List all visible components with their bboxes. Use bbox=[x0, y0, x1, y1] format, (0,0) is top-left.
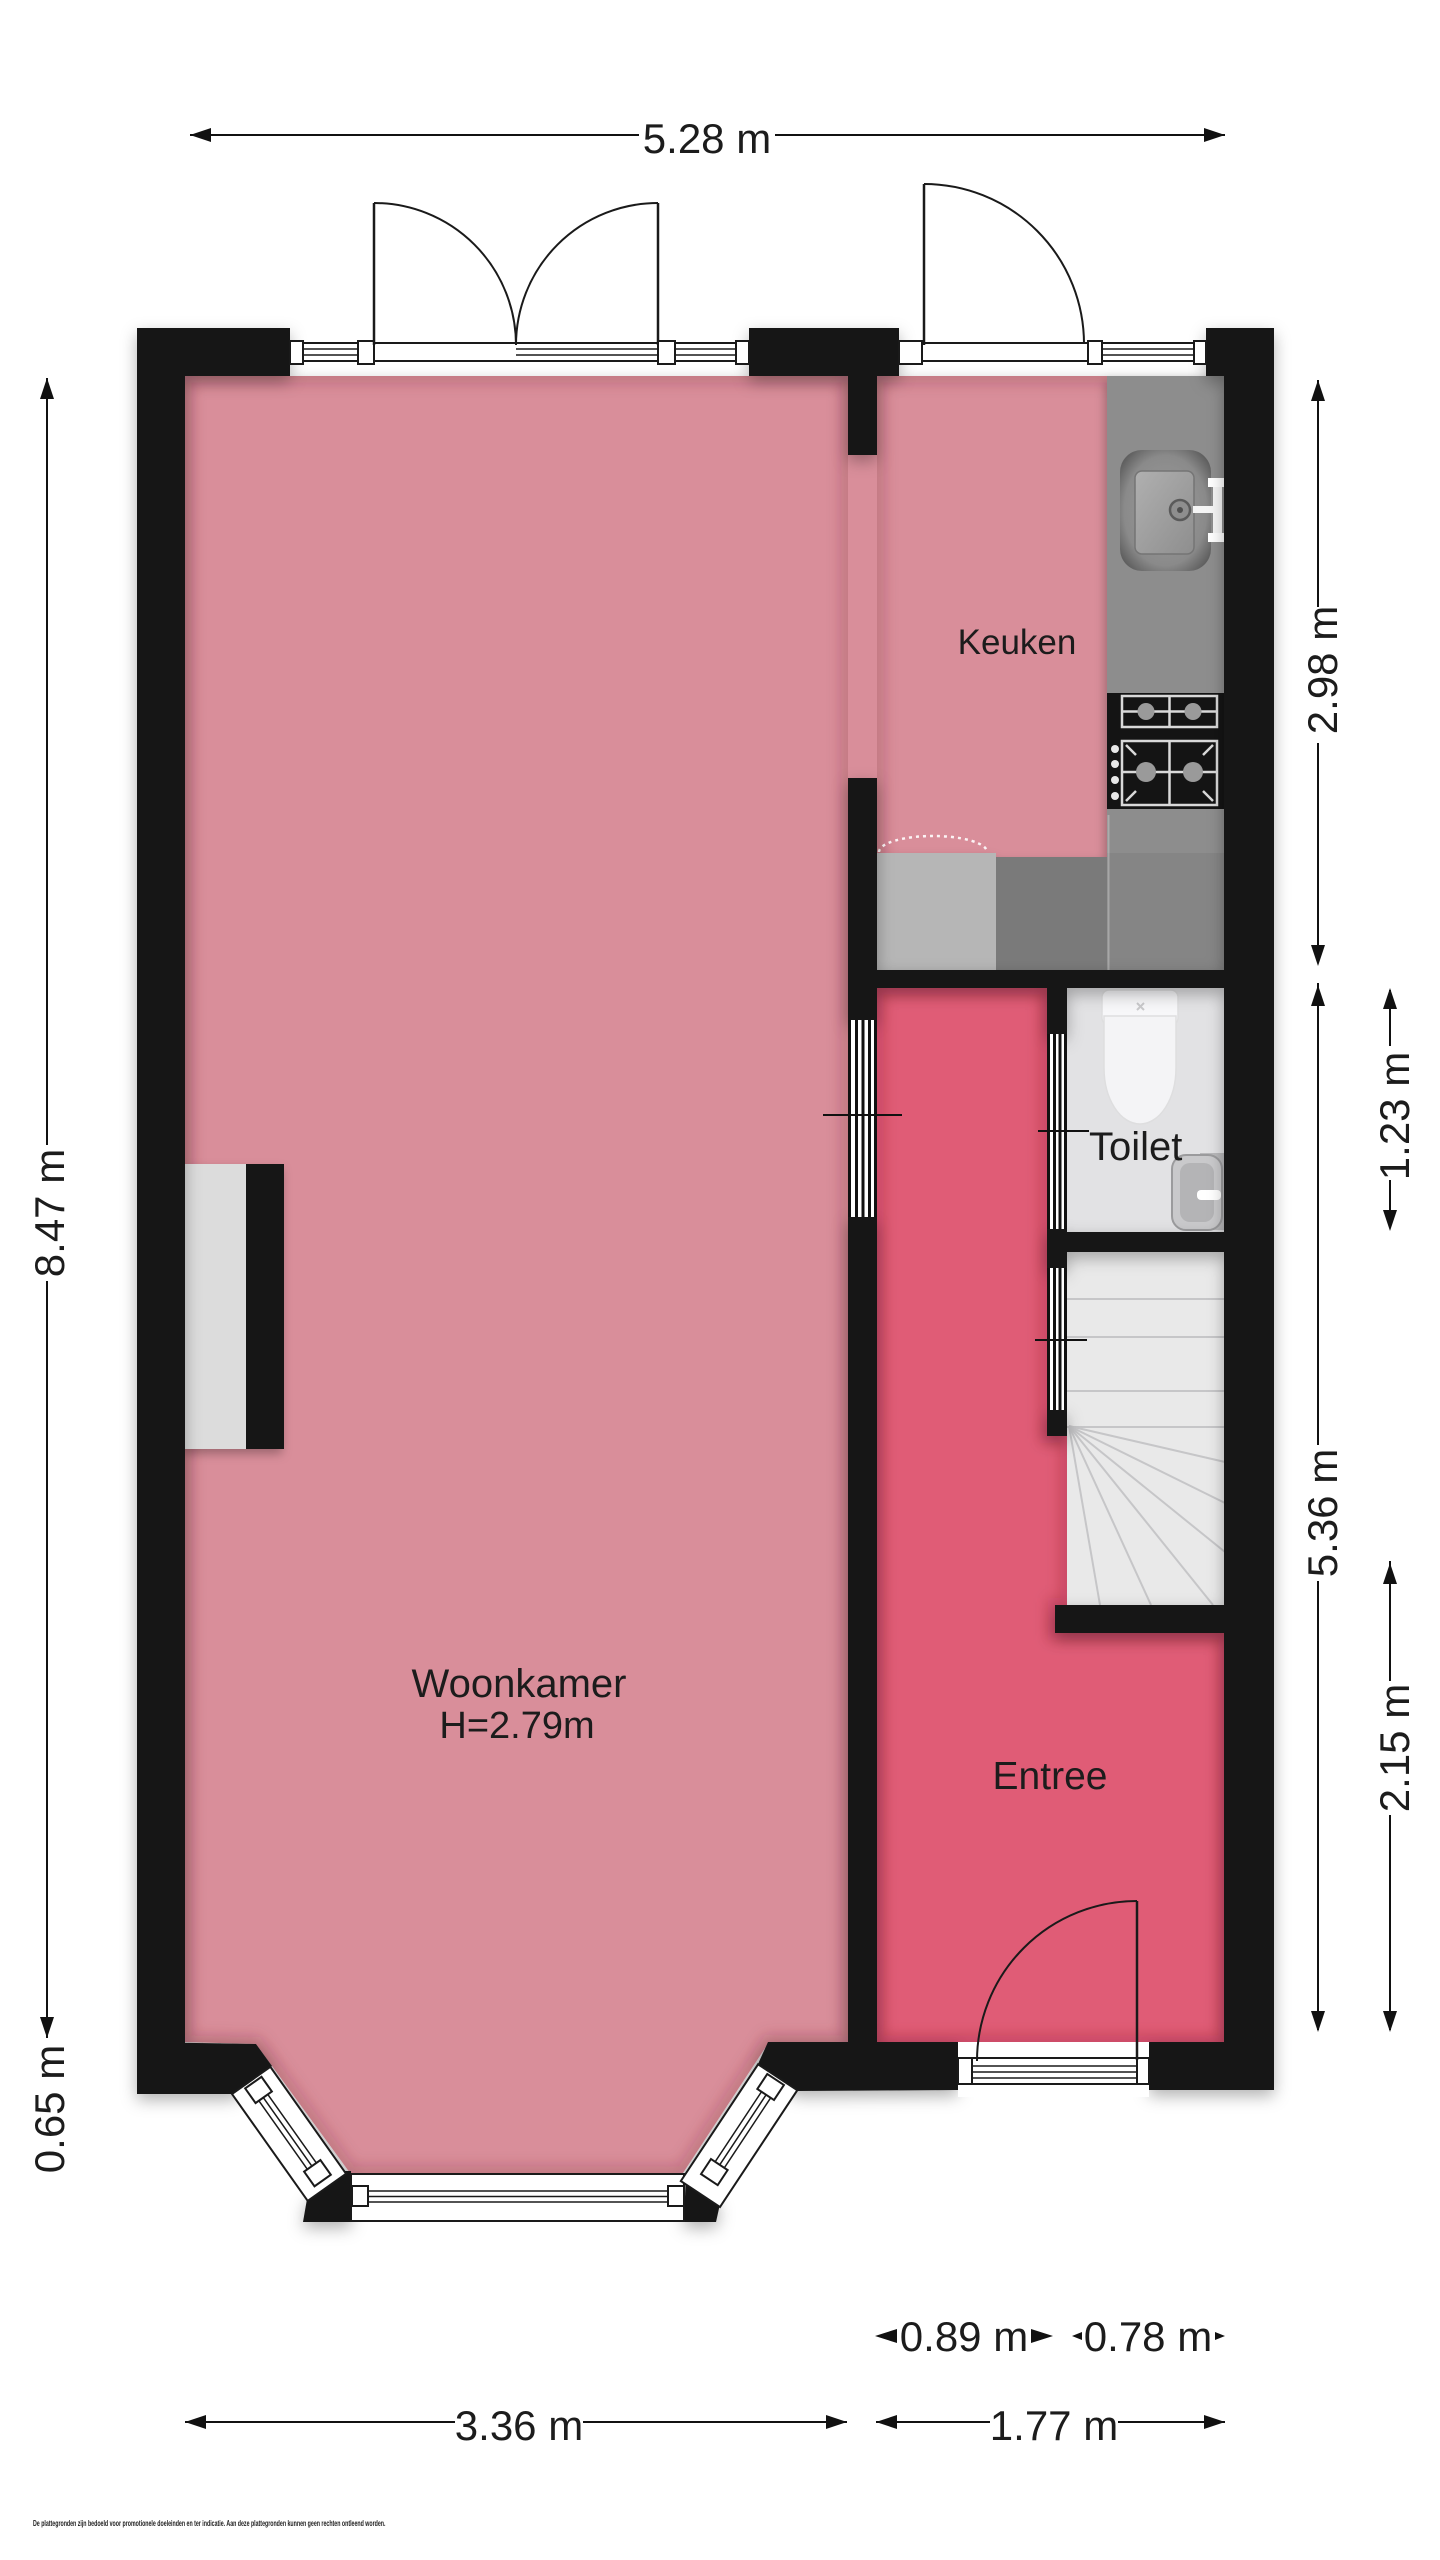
svg-text:0.89 m: 0.89 m bbox=[900, 2313, 1028, 2360]
svg-text:Keuken: Keuken bbox=[958, 623, 1077, 662]
svg-text:8.47 m: 8.47 m bbox=[26, 1149, 73, 1277]
svg-text:2.98 m: 2.98 m bbox=[1299, 606, 1346, 734]
svg-text:Woonkamer: Woonkamer bbox=[412, 1662, 627, 1706]
svg-text:5.28 m: 5.28 m bbox=[643, 115, 771, 162]
svg-text:1.77 m: 1.77 m bbox=[990, 2402, 1118, 2449]
svg-text:3.36 m: 3.36 m bbox=[455, 2402, 583, 2449]
svg-text:Toilet: Toilet bbox=[1089, 1125, 1182, 1169]
svg-text:H=2.79m: H=2.79m bbox=[439, 1705, 594, 1747]
svg-text:De plattegronden zijn bedoeld: De plattegronden zijn bedoeld voor promo… bbox=[33, 2520, 385, 2528]
svg-text:2.15 m: 2.15 m bbox=[1371, 1684, 1418, 1812]
svg-text:1.23 m: 1.23 m bbox=[1371, 1052, 1418, 1180]
svg-text:5.36 m: 5.36 m bbox=[1299, 1449, 1346, 1577]
svg-text:Entree: Entree bbox=[993, 1755, 1108, 1798]
svg-text:0.65 m: 0.65 m bbox=[26, 2045, 73, 2173]
svg-text:0.78 m: 0.78 m bbox=[1084, 2313, 1212, 2360]
